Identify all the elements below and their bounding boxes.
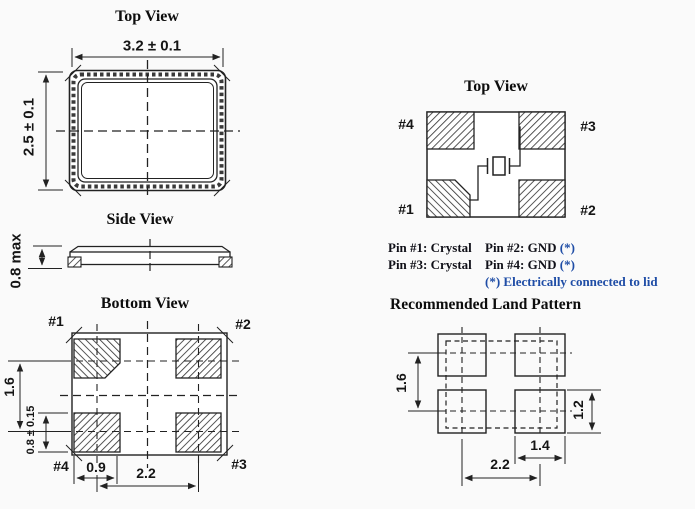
- package-top-view-title: Top View: [115, 8, 179, 26]
- dim-col-pitch-label: 2.2: [136, 465, 155, 481]
- pin3-assignment: Pin #3: Crystal: [388, 257, 472, 273]
- pin2-assignment-text: Pin #2: GND: [485, 240, 557, 255]
- dim-pad-width-label: 0.9: [86, 459, 105, 475]
- dim-row-pitch-1_6: [408, 353, 440, 411]
- pinout-top-view-drawing: [427, 112, 565, 217]
- pad-2: [519, 180, 565, 217]
- datasheet-package-drawing: Top View 3.2 ± 0.1 2.5 ± 0.1 Side View 0…: [0, 0, 695, 509]
- dim-row-pitch-label: 1.6: [1, 377, 17, 396]
- land-dim-pad-width-label: 1.4: [530, 437, 549, 453]
- pin4-assignment: Pin #4: GND (*): [485, 257, 575, 273]
- pin4-assignment-text: Pin #4: GND: [485, 257, 557, 272]
- pin4-star: (*): [560, 257, 575, 272]
- side-pad-left: [68, 257, 81, 267]
- bottom-view-drawing: [8, 321, 241, 492]
- pad-3: [519, 112, 565, 149]
- pinout-pin3-label: #3: [580, 118, 596, 134]
- bottom-pin1-label: #1: [48, 313, 64, 329]
- drawing-canvas: [0, 0, 695, 509]
- dim-thickness-label: 0.8 max: [8, 233, 25, 288]
- bottom-pin4-label: #4: [53, 458, 69, 474]
- pinout-pin4-label: #4: [398, 116, 414, 132]
- dim-height-label: 2.5 ± 0.1: [21, 98, 38, 156]
- dim-width-label: 3.2 ± 0.1: [123, 38, 181, 55]
- pinout-pin1-label: #1: [398, 201, 414, 217]
- pin2-star: (*): [560, 240, 575, 255]
- pinout-top-view-title: Top View: [464, 78, 528, 96]
- land-dim-col-pitch-label: 2.2: [490, 456, 509, 472]
- pad-4: [427, 112, 474, 149]
- pin2-assignment: Pin #2: GND (*): [485, 240, 575, 256]
- land-pattern-title: Recommended Land Pattern: [390, 296, 581, 314]
- pin1-assignment: Pin #1: Crystal: [388, 240, 472, 256]
- crystal-symbol: [493, 157, 505, 175]
- bottom-pin2-label: #2: [235, 316, 251, 332]
- lid-connection-note: (*) Electrically connected to lid: [485, 274, 658, 290]
- side-view-title: Side View: [106, 211, 173, 229]
- bottom-view-title: Bottom View: [101, 295, 189, 313]
- dim-thickness-0_8: [28, 246, 62, 269]
- land-dim-row-pitch-label: 1.6: [393, 373, 409, 392]
- package-top-view-drawing: [38, 48, 240, 200]
- pinout-pin2-label: #2: [580, 202, 596, 218]
- dim-pad-height-label: 0.8 ± 0.15: [25, 406, 37, 455]
- side-pad-right: [219, 257, 232, 267]
- bottom-pin3-label: #3: [231, 456, 247, 472]
- land-dim-pad-height-label: 1.2: [570, 400, 586, 419]
- dim-pad-height-0_8: [38, 413, 68, 452]
- side-view-drawing: [28, 239, 232, 272]
